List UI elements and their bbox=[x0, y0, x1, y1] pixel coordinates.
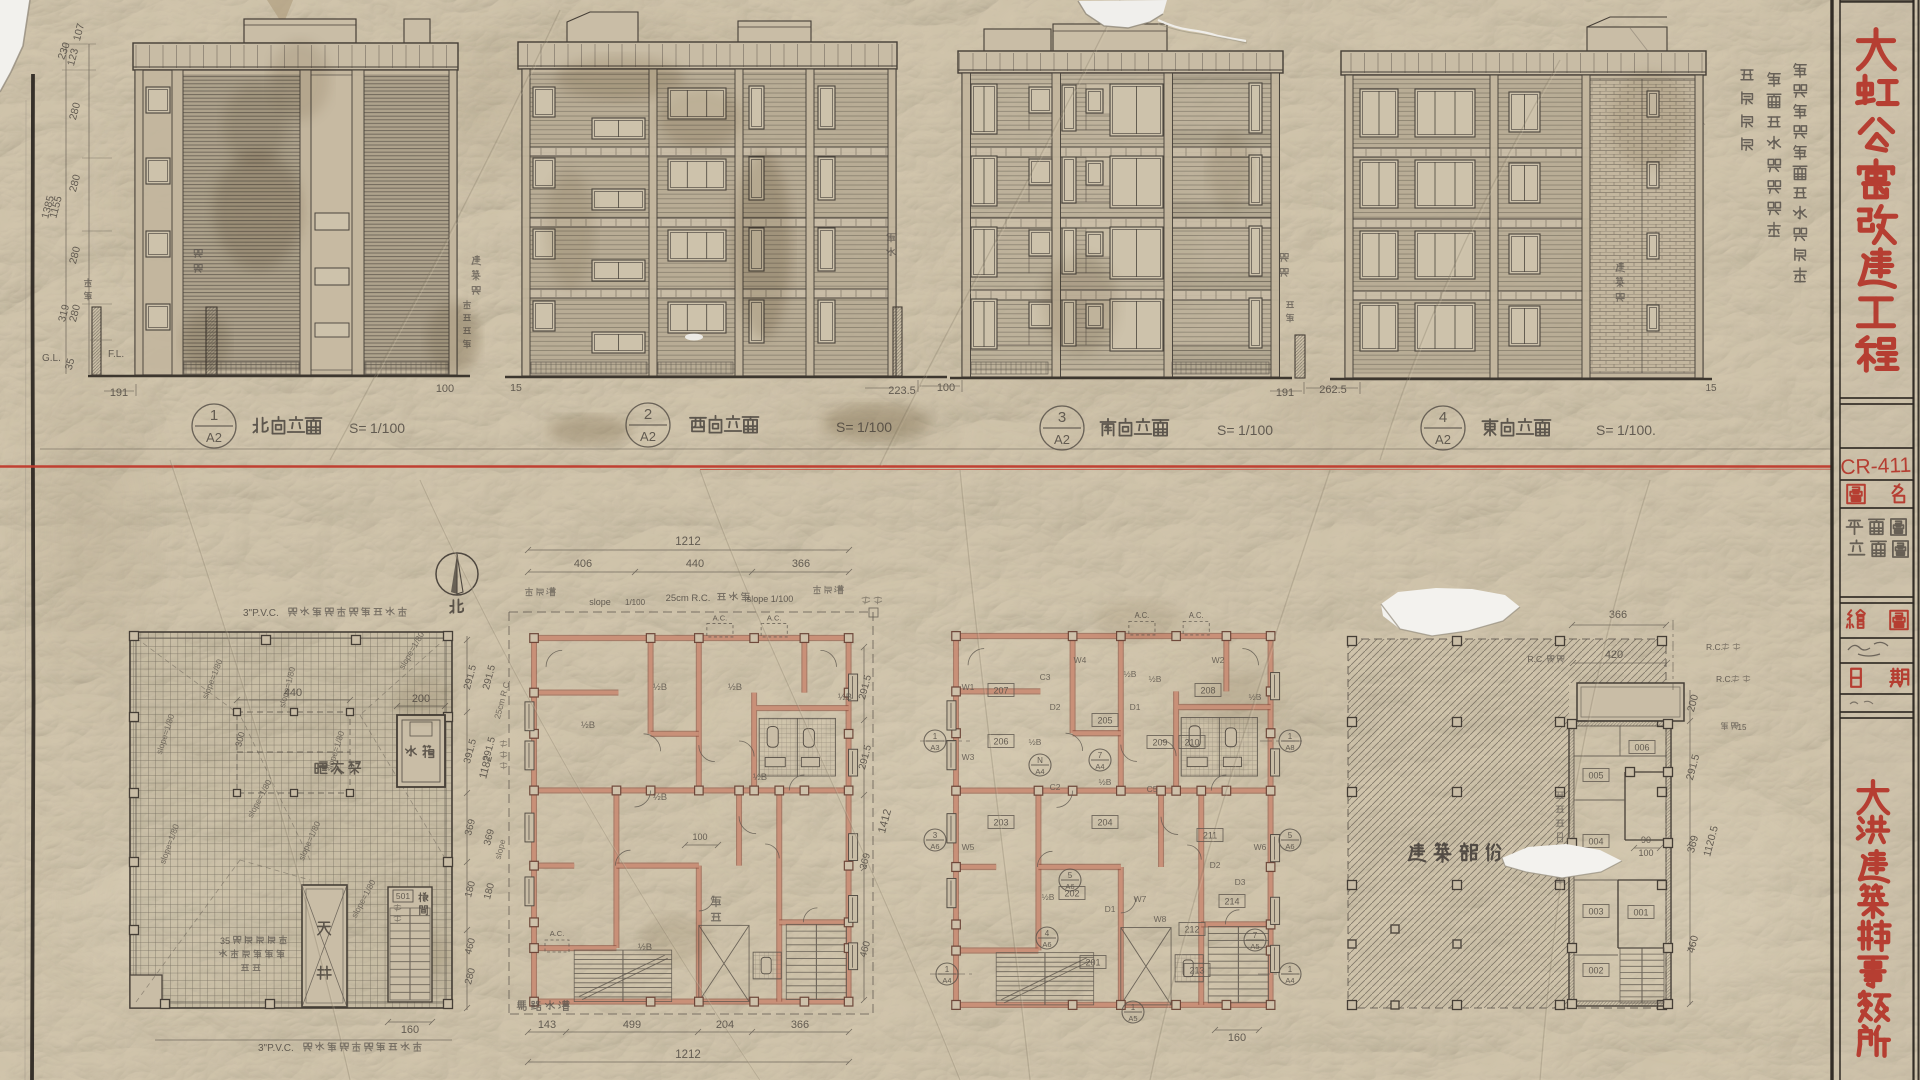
svg-text:1: 1 bbox=[1288, 732, 1293, 741]
svg-text:½B: ½B bbox=[581, 720, 595, 731]
svg-text:R.C.: R.C. bbox=[1716, 674, 1733, 684]
svg-text:406: 406 bbox=[574, 558, 592, 570]
svg-text:½B: ½B bbox=[1099, 777, 1112, 787]
svg-text:½B: ½B bbox=[1149, 674, 1162, 684]
svg-text:1: 1 bbox=[210, 407, 218, 424]
svg-text:3: 3 bbox=[933, 831, 938, 840]
svg-text:006: 006 bbox=[1634, 743, 1649, 753]
svg-text:D2: D2 bbox=[1050, 702, 1061, 712]
svg-text:A6: A6 bbox=[1042, 940, 1051, 949]
svg-text:15: 15 bbox=[1738, 723, 1747, 732]
svg-text:100: 100 bbox=[937, 382, 955, 394]
svg-text:005: 005 bbox=[1588, 771, 1603, 781]
svg-text:5: 5 bbox=[1068, 871, 1073, 880]
svg-text:143: 143 bbox=[538, 1019, 556, 1031]
svg-text:A2: A2 bbox=[1435, 432, 1451, 447]
svg-text:½B: ½B bbox=[1124, 669, 1137, 679]
svg-text:3: 3 bbox=[1058, 409, 1066, 426]
svg-text:25cm R.C.: 25cm R.C. bbox=[666, 593, 711, 604]
svg-text:½B: ½B bbox=[838, 692, 852, 703]
svg-text:G.L.: G.L. bbox=[42, 353, 61, 364]
svg-text:½B: ½B bbox=[1042, 892, 1055, 902]
svg-text:4: 4 bbox=[1045, 929, 1050, 938]
svg-text:1: 1 bbox=[1288, 965, 1293, 974]
svg-text:A6: A6 bbox=[1065, 882, 1074, 891]
svg-text:A2: A2 bbox=[206, 430, 222, 445]
svg-text:15: 15 bbox=[1705, 383, 1717, 394]
svg-text:001: 001 bbox=[1633, 908, 1648, 918]
svg-text:4: 4 bbox=[1439, 409, 1447, 426]
svg-text:½B: ½B bbox=[1029, 737, 1042, 747]
svg-text:C3: C3 bbox=[1040, 672, 1051, 682]
svg-text:262.5: 262.5 bbox=[1319, 384, 1347, 396]
svg-text:A4: A4 bbox=[1035, 767, 1044, 776]
svg-text:S=: S= bbox=[1217, 422, 1235, 438]
svg-text:A.C.: A.C. bbox=[1189, 611, 1204, 620]
svg-text:W5: W5 bbox=[962, 842, 975, 852]
svg-text:499: 499 bbox=[623, 1019, 641, 1031]
svg-text:W2: W2 bbox=[1212, 655, 1225, 665]
svg-text:R.C.: R.C. bbox=[1706, 642, 1723, 652]
svg-text:W6: W6 bbox=[1254, 842, 1267, 852]
svg-text:1: 1 bbox=[1131, 1003, 1136, 1012]
svg-text:213: 213 bbox=[1189, 966, 1204, 976]
svg-text:1: 1 bbox=[945, 965, 950, 974]
svg-text:440: 440 bbox=[686, 558, 704, 570]
svg-text:501: 501 bbox=[396, 891, 410, 901]
svg-text:420: 420 bbox=[1605, 649, 1623, 661]
svg-text:223.5: 223.5 bbox=[888, 385, 916, 397]
svg-text:S=: S= bbox=[1596, 422, 1614, 438]
svg-text:W1: W1 bbox=[962, 682, 975, 692]
svg-text:100: 100 bbox=[436, 383, 454, 395]
svg-text:A4: A4 bbox=[942, 976, 951, 985]
svg-text:7: 7 bbox=[1098, 751, 1103, 760]
svg-text:1/100: 1/100 bbox=[1238, 422, 1273, 438]
svg-text:7: 7 bbox=[1253, 931, 1258, 940]
svg-text:A2: A2 bbox=[640, 429, 656, 444]
svg-text:A3: A3 bbox=[930, 743, 939, 752]
svg-text:D1: D1 bbox=[1105, 904, 1116, 914]
svg-text:S=: S= bbox=[349, 420, 367, 436]
svg-text:1/100: 1/100 bbox=[625, 598, 646, 607]
svg-text:W7: W7 bbox=[1134, 894, 1147, 904]
svg-text:15: 15 bbox=[510, 382, 522, 394]
svg-text:1212: 1212 bbox=[675, 1049, 701, 1061]
svg-text:A4: A4 bbox=[1285, 976, 1294, 985]
svg-text:207: 207 bbox=[993, 686, 1008, 696]
svg-text:160: 160 bbox=[401, 1024, 419, 1036]
svg-text:205: 205 bbox=[1097, 716, 1112, 726]
svg-text:D2: D2 bbox=[1210, 860, 1221, 870]
svg-text:½B: ½B bbox=[653, 682, 667, 693]
svg-text:R.C.: R.C. bbox=[1528, 654, 1545, 664]
svg-text:210: 210 bbox=[1184, 738, 1199, 748]
svg-text:D1: D1 bbox=[1130, 702, 1141, 712]
svg-text:½B: ½B bbox=[728, 682, 742, 693]
svg-text:191: 191 bbox=[1276, 387, 1294, 399]
svg-text:CR-411: CR-411 bbox=[1840, 454, 1912, 479]
svg-text:A6: A6 bbox=[1285, 842, 1294, 851]
svg-text:½B: ½B bbox=[753, 772, 767, 783]
svg-text:3"P.V.C.: 3"P.V.C. bbox=[243, 608, 279, 619]
svg-text:A6: A6 bbox=[930, 842, 939, 851]
svg-text:201: 201 bbox=[1085, 958, 1100, 968]
svg-text:160: 160 bbox=[1228, 1032, 1246, 1044]
svg-text:209: 209 bbox=[1152, 738, 1167, 748]
svg-text:½B: ½B bbox=[653, 792, 667, 803]
svg-text:1/100.: 1/100. bbox=[1617, 422, 1656, 438]
svg-text:100: 100 bbox=[692, 832, 707, 842]
svg-text:3"P.V.C.: 3"P.V.C. bbox=[258, 1043, 294, 1054]
svg-text:slope: slope bbox=[589, 597, 611, 607]
svg-text:366: 366 bbox=[791, 1019, 809, 1031]
svg-text:A2: A2 bbox=[1054, 432, 1070, 447]
svg-text:1212: 1212 bbox=[675, 536, 701, 548]
svg-text:A4: A4 bbox=[1095, 762, 1104, 771]
svg-text:2: 2 bbox=[644, 406, 652, 423]
svg-text:002: 002 bbox=[1588, 966, 1603, 976]
svg-text:1/100: 1/100 bbox=[370, 420, 405, 436]
svg-text:100: 100 bbox=[1638, 848, 1653, 858]
svg-text:W8: W8 bbox=[1154, 914, 1167, 924]
svg-text:C5: C5 bbox=[1147, 784, 1158, 794]
svg-text:A.C.: A.C. bbox=[713, 613, 728, 622]
svg-text:366: 366 bbox=[792, 558, 810, 570]
svg-text:D3: D3 bbox=[1235, 877, 1246, 887]
svg-text:C2: C2 bbox=[1050, 782, 1061, 792]
svg-text:214: 214 bbox=[1224, 897, 1239, 907]
svg-text:A5: A5 bbox=[1128, 1014, 1137, 1023]
svg-text:A5: A5 bbox=[1250, 942, 1259, 951]
svg-text:F.L.: F.L. bbox=[108, 349, 124, 360]
svg-text:A8: A8 bbox=[1285, 743, 1294, 752]
svg-text:004: 004 bbox=[1588, 837, 1603, 847]
svg-text:204: 204 bbox=[1097, 818, 1112, 828]
svg-text:003: 003 bbox=[1588, 907, 1603, 917]
svg-text:W3: W3 bbox=[962, 752, 975, 762]
svg-text:W4: W4 bbox=[1074, 655, 1087, 665]
svg-text:35: 35 bbox=[220, 936, 230, 946]
svg-text:A.C.: A.C. bbox=[767, 613, 782, 622]
svg-text:A.C.: A.C. bbox=[550, 929, 565, 938]
svg-text:N: N bbox=[1037, 756, 1043, 765]
svg-text:90: 90 bbox=[1641, 835, 1651, 845]
svg-text:208: 208 bbox=[1200, 686, 1215, 696]
svg-text:5: 5 bbox=[1288, 831, 1293, 840]
svg-text:1: 1 bbox=[933, 732, 938, 741]
svg-text:206: 206 bbox=[993, 737, 1008, 747]
svg-text:191: 191 bbox=[110, 387, 128, 399]
